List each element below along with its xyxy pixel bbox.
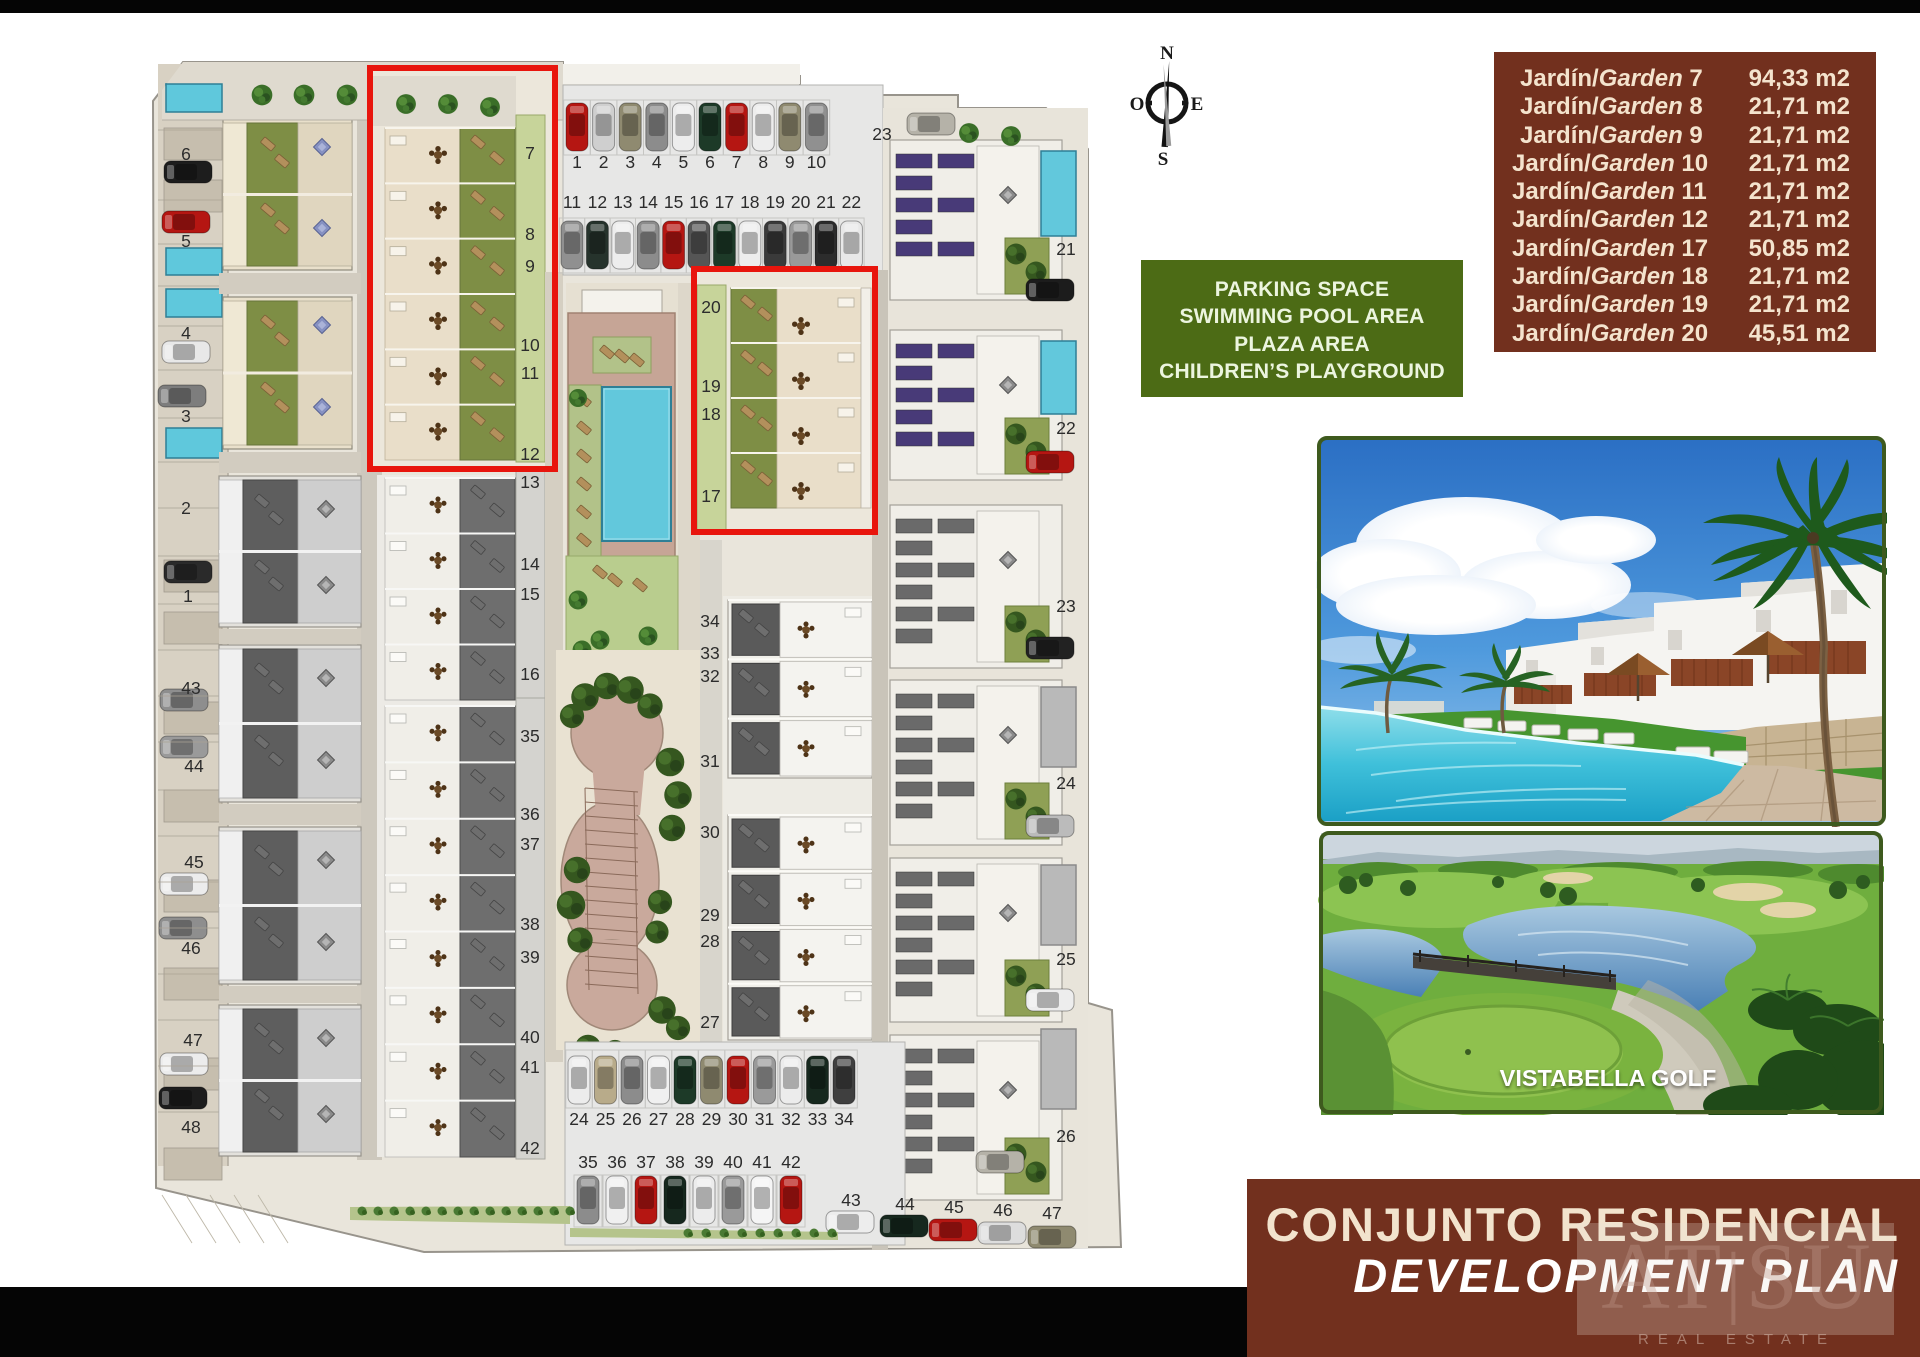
svg-text:31: 31 [700,751,719,771]
svg-text:34: 34 [834,1109,854,1129]
svg-text:7: 7 [732,152,742,172]
svg-text:39: 39 [694,1152,713,1172]
svg-text:47: 47 [183,1030,202,1050]
svg-text:14: 14 [638,192,658,212]
svg-text:35: 35 [578,1152,597,1172]
svg-text:10: 10 [520,335,540,355]
svg-text:8: 8 [525,224,535,244]
svg-text:9: 9 [525,256,535,276]
svg-text:35: 35 [520,726,539,746]
svg-text:40: 40 [723,1152,743,1172]
svg-text:19: 19 [765,192,784,212]
svg-text:16: 16 [689,192,708,212]
svg-text:45: 45 [184,852,203,872]
svg-text:24: 24 [569,1109,589,1129]
svg-text:20: 20 [791,192,811,212]
svg-text:40: 40 [520,1027,540,1047]
svg-text:N: N [1160,43,1174,64]
svg-text:24: 24 [1056,773,1076,793]
svg-text:39: 39 [520,947,539,967]
svg-text:29: 29 [700,905,719,925]
svg-text:14: 14 [520,554,540,574]
svg-text:1: 1 [572,152,582,172]
svg-text:30: 30 [700,822,720,842]
svg-text:3: 3 [181,406,191,426]
svg-text:38: 38 [520,914,539,934]
svg-text:21: 21 [1056,239,1075,259]
svg-text:16: 16 [520,664,539,684]
svg-text:38: 38 [665,1152,684,1172]
svg-text:33: 33 [700,643,719,663]
svg-text:12: 12 [520,444,539,464]
svg-text:28: 28 [675,1109,694,1129]
svg-text:9: 9 [785,152,795,172]
svg-text:42: 42 [520,1138,539,1158]
svg-text:15: 15 [520,584,539,604]
svg-text:47: 47 [1042,1203,1061,1223]
svg-text:26: 26 [1056,1126,1075,1146]
svg-text:22: 22 [1056,418,1075,438]
svg-text:O: O [1130,94,1145,115]
svg-text:25: 25 [596,1109,615,1129]
svg-text:10: 10 [807,152,827,172]
svg-text:48: 48 [181,1117,200,1137]
svg-text:36: 36 [607,1152,626,1172]
svg-text:19: 19 [701,376,720,396]
svg-text:37: 37 [636,1152,655,1172]
svg-text:1: 1 [183,586,193,606]
svg-text:33: 33 [808,1109,827,1129]
svg-text:31: 31 [755,1109,774,1129]
svg-text:30: 30 [728,1109,748,1129]
svg-text:25: 25 [1056,949,1075,969]
svg-text:5: 5 [181,231,191,251]
svg-text:15: 15 [664,192,683,212]
svg-text:17: 17 [715,192,734,212]
svg-text:S: S [1158,149,1169,170]
svg-text:11: 11 [521,363,539,383]
svg-text:44: 44 [895,1194,915,1214]
svg-text:6: 6 [705,152,715,172]
svg-text:23: 23 [1056,596,1075,616]
svg-text:17: 17 [701,486,720,506]
svg-text:41: 41 [752,1152,771,1172]
svg-text:13: 13 [613,192,632,212]
svg-text:34: 34 [700,611,720,631]
svg-text:32: 32 [781,1109,800,1129]
svg-text:27: 27 [700,1012,719,1032]
svg-text:28: 28 [700,931,719,951]
svg-text:6: 6 [181,144,191,164]
svg-text:E: E [1191,94,1204,115]
svg-text:43: 43 [841,1190,860,1210]
svg-text:12: 12 [588,192,607,212]
svg-text:32: 32 [700,666,719,686]
svg-text:VISTABELLA GOLF: VISTABELLA GOLF [1500,1065,1717,1091]
svg-text:44: 44 [184,756,204,776]
svg-text:3: 3 [625,152,635,172]
svg-text:8: 8 [758,152,768,172]
svg-text:29: 29 [702,1109,721,1129]
svg-text:46: 46 [181,938,200,958]
svg-text:13: 13 [520,472,539,492]
svg-text:42: 42 [781,1152,800,1172]
svg-text:4: 4 [652,152,662,172]
svg-text:26: 26 [622,1109,641,1129]
svg-text:27: 27 [649,1109,668,1129]
svg-text:46: 46 [993,1200,1012,1220]
svg-text:11: 11 [563,192,581,212]
svg-text:36: 36 [520,804,539,824]
svg-text:43: 43 [181,678,200,698]
svg-text:2: 2 [599,152,609,172]
svg-text:5: 5 [679,152,689,172]
svg-text:22: 22 [842,192,861,212]
svg-text:18: 18 [701,404,720,424]
svg-text:20: 20 [701,297,721,317]
svg-text:23: 23 [872,124,891,144]
svg-text:18: 18 [740,192,759,212]
svg-text:21: 21 [816,192,835,212]
svg-text:41: 41 [520,1057,539,1077]
svg-text:37: 37 [520,834,539,854]
svg-text:7: 7 [525,143,535,163]
svg-text:45: 45 [944,1197,963,1217]
